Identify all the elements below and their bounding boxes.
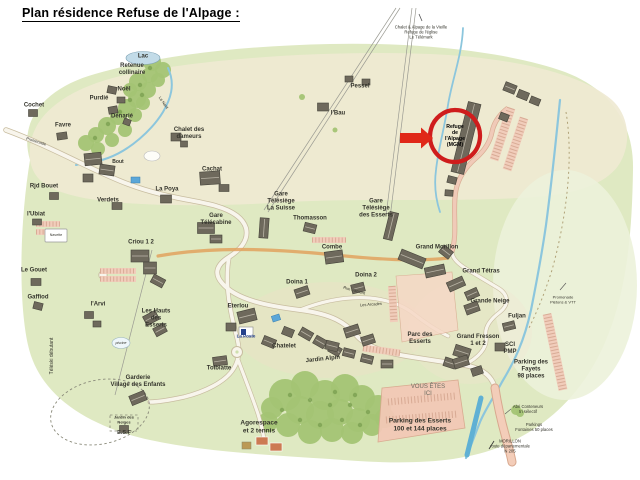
lake — [126, 52, 160, 65]
agorespace — [242, 442, 251, 449]
la-poste-icon — [241, 329, 246, 335]
building — [120, 426, 129, 433]
building — [226, 323, 236, 331]
building — [83, 174, 93, 182]
building — [495, 343, 505, 351]
building — [117, 97, 125, 103]
pool-icon — [131, 177, 140, 183]
building — [362, 79, 370, 85]
building — [445, 190, 453, 197]
building — [33, 219, 42, 225]
building — [85, 312, 94, 319]
building — [108, 106, 118, 114]
building — [29, 110, 38, 117]
navette-sign — [45, 229, 67, 242]
building — [161, 195, 172, 203]
building — [181, 141, 188, 147]
building — [57, 132, 68, 140]
building — [112, 203, 122, 210]
building — [318, 103, 329, 111]
building — [219, 185, 229, 192]
building — [171, 133, 181, 141]
oval-note — [144, 151, 160, 161]
screenshot-page: Plan résidence Refuse de l'Alpage : Refu… — [0, 0, 640, 480]
building — [107, 86, 117, 95]
building — [31, 279, 41, 286]
page-title: Plan résidence Refuse de l'Alpage : — [22, 6, 240, 22]
tennis-court — [256, 437, 268, 445]
map-canvas — [0, 0, 640, 480]
pond — [112, 338, 130, 349]
building — [345, 76, 353, 82]
tennis-court — [270, 443, 282, 451]
building — [50, 193, 59, 200]
building — [93, 321, 101, 327]
